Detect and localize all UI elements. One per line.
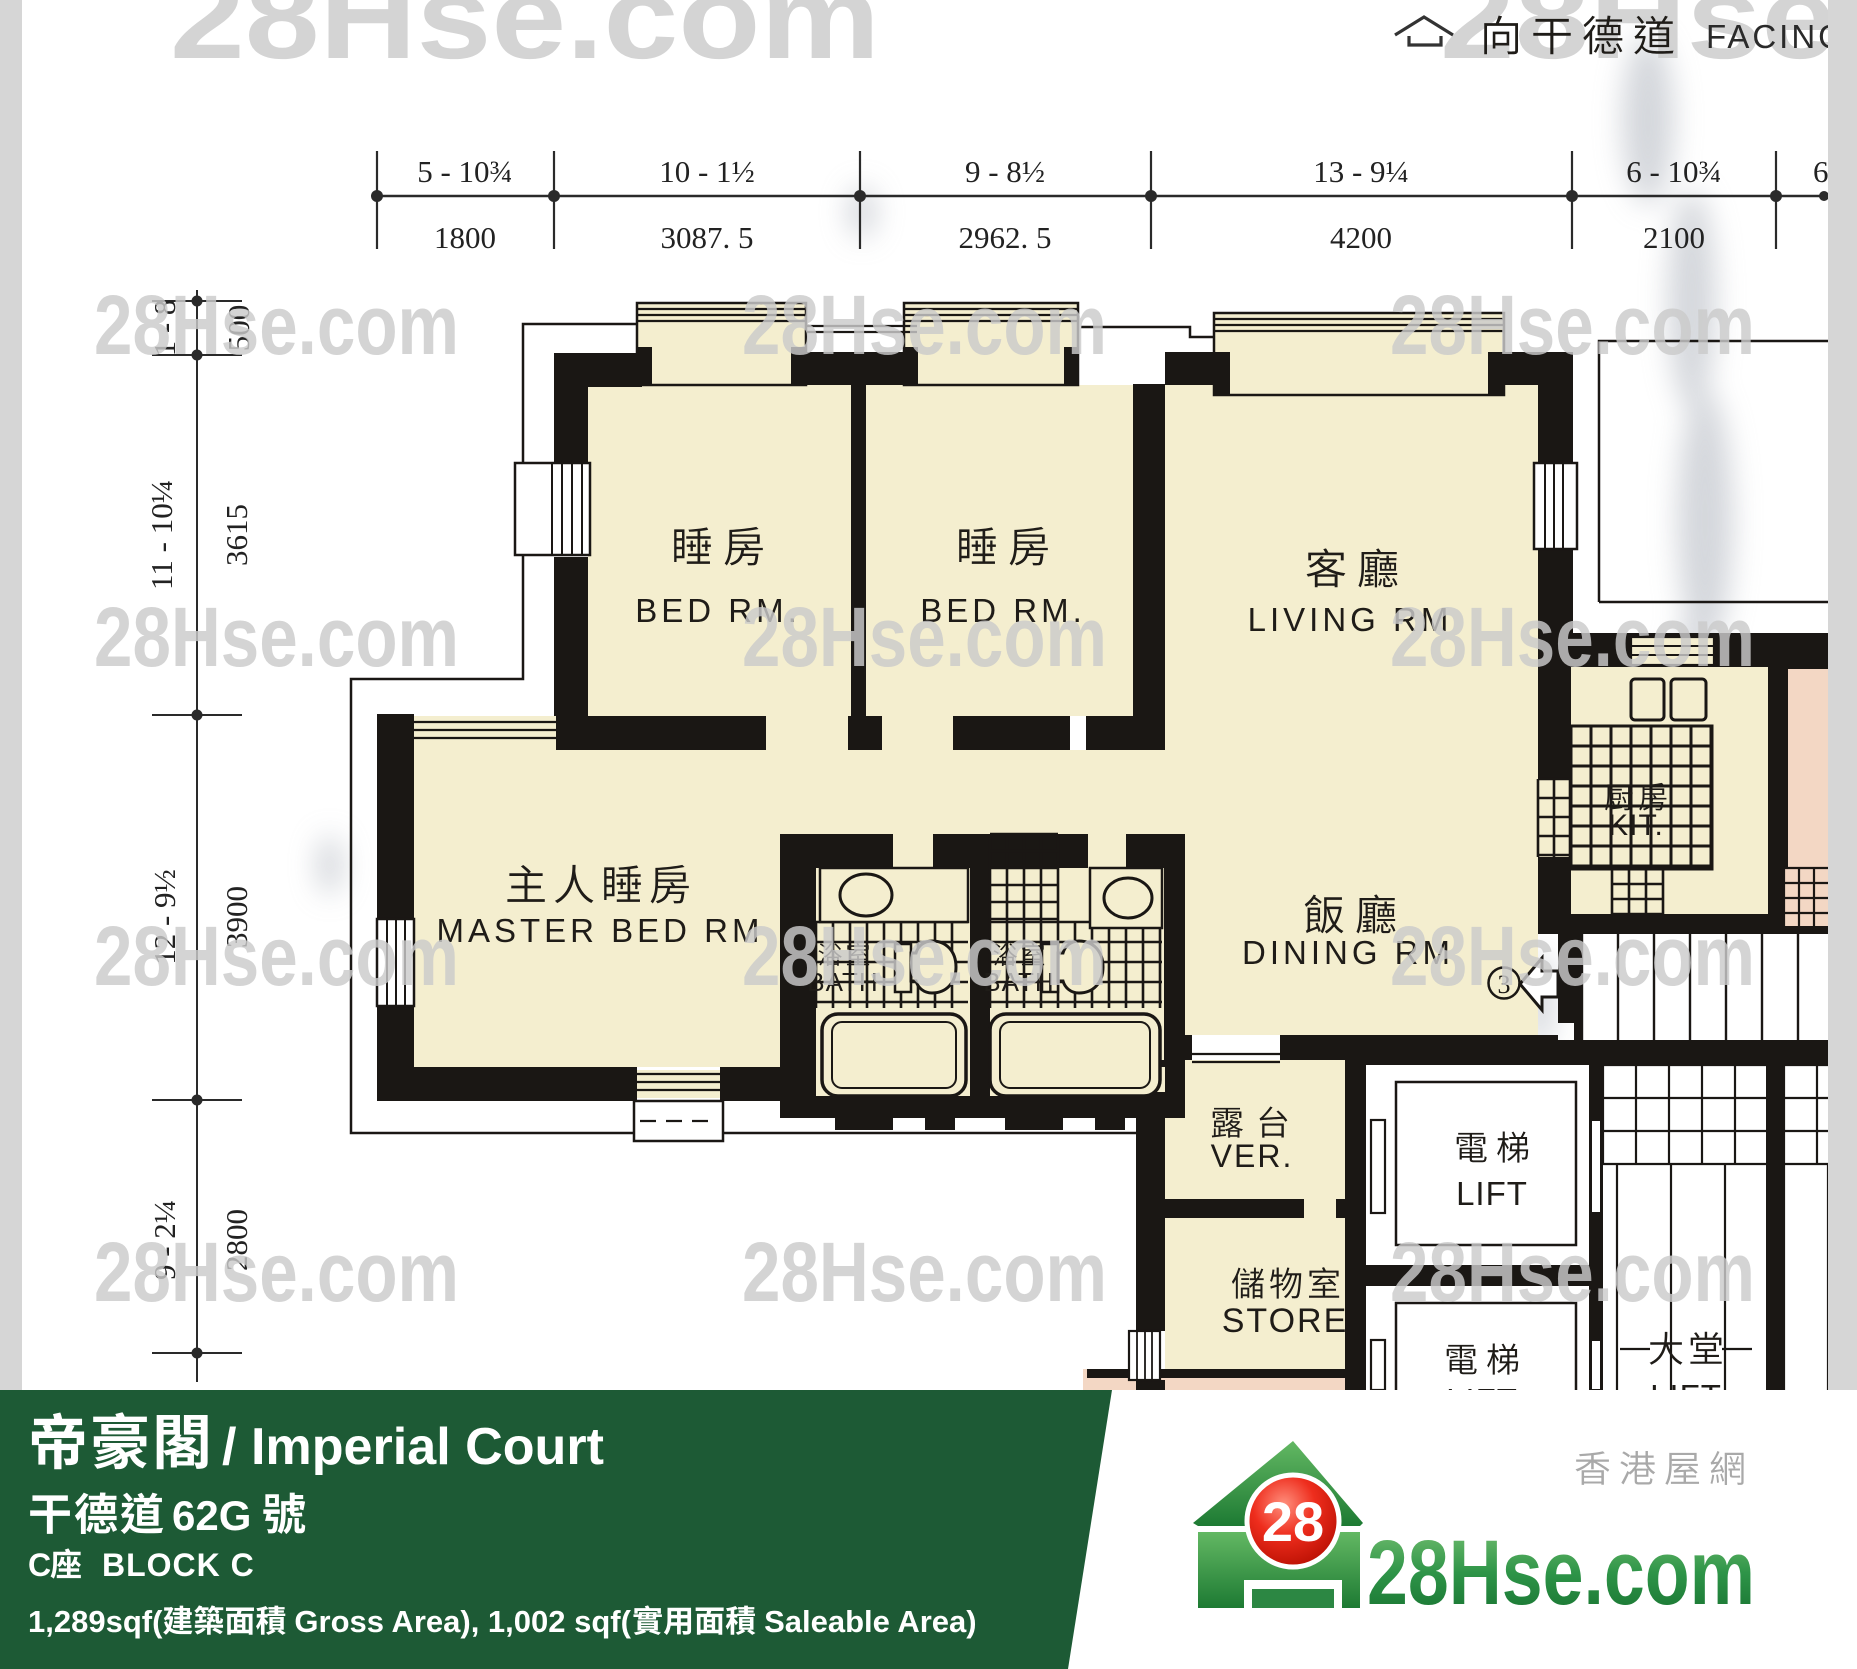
svg-text:FACING: FACING — [1706, 18, 1847, 55]
svg-text:1,289sqf(: 1,289sqf( — [28, 1604, 163, 1639]
svg-text:Saleable Area): Saleable Area) — [764, 1604, 977, 1639]
svg-text:Gross Area), 1,002 sqf(: Gross Area), 1,002 sqf( — [294, 1604, 631, 1639]
svg-text:STORE: STORE — [1222, 1302, 1349, 1340]
svg-text:/ Imperial Court: / Imperial Court — [222, 1418, 604, 1476]
svg-text:28Hse.com: 28Hse.com — [1367, 1522, 1755, 1624]
svg-text:4200: 4200 — [1330, 220, 1392, 255]
svg-text:28Hse.com: 28Hse.com — [94, 590, 459, 684]
svg-text:BLOCK C: BLOCK C — [102, 1547, 255, 1583]
svg-text:28Hse.com: 28Hse.com — [742, 590, 1107, 684]
svg-text:6 - 10¾: 6 - 10¾ — [1626, 154, 1722, 189]
svg-text:13 - 9¼: 13 - 9¼ — [1313, 154, 1409, 189]
svg-text:10 - 1½: 10 - 1½ — [659, 154, 755, 189]
svg-text:28Hse.com: 28Hse.com — [1390, 909, 1755, 1003]
svg-text:MASTER BED RM: MASTER BED RM — [436, 912, 763, 949]
svg-text:LIFT: LIFT — [1456, 1175, 1528, 1212]
svg-text:6: 6 — [1813, 154, 1829, 189]
svg-text:9 - 8½: 9 - 8½ — [965, 154, 1045, 189]
svg-text:2962. 5: 2962. 5 — [959, 220, 1052, 255]
svg-text:VER.: VER. — [1211, 1138, 1294, 1174]
svg-text:28Hse.com: 28Hse.com — [742, 1225, 1107, 1319]
svg-text:3087. 5: 3087. 5 — [661, 220, 754, 255]
svg-text:28Hse.com: 28Hse.com — [94, 909, 459, 1003]
svg-text:KIT.: KIT. — [1608, 809, 1664, 842]
svg-text:5 - 10¾: 5 - 10¾ — [417, 154, 513, 189]
svg-text:62G: 62G — [172, 1492, 251, 1539]
svg-text:11 - 10¼: 11 - 10¼ — [144, 480, 179, 590]
svg-text:28Hse.com: 28Hse.com — [94, 278, 459, 372]
svg-text:3615: 3615 — [219, 504, 254, 566]
svg-text:28Hse.com: 28Hse.com — [742, 909, 1107, 1003]
svg-text:28Hse.com: 28Hse.com — [1390, 278, 1755, 372]
svg-text:1800: 1800 — [434, 220, 496, 255]
svg-text:C: C — [28, 1547, 51, 1583]
svg-text:28Hse.com: 28Hse.com — [94, 1225, 459, 1319]
svg-text:28Hse.com: 28Hse.com — [170, 0, 880, 84]
svg-text:28: 28 — [1262, 1490, 1324, 1553]
svg-text:28Hse.com: 28Hse.com — [1390, 590, 1755, 684]
svg-text:28Hse.com: 28Hse.com — [1390, 1225, 1755, 1319]
svg-text:28Hse.com: 28Hse.com — [742, 278, 1107, 372]
svg-text:2100: 2100 — [1643, 220, 1705, 255]
